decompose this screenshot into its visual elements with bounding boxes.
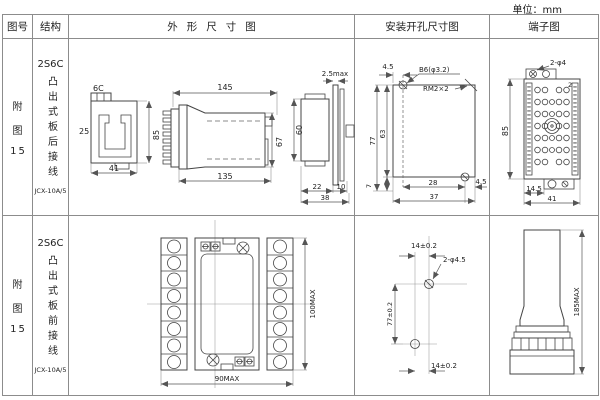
structure-desc: 凸出式板后接线 [46, 76, 56, 181]
rear-profile-drawing: 6C 25 85 41 [79, 83, 161, 181]
header-outline: 外形尺寸图 [69, 15, 355, 39]
dim-label: 90MAX [215, 375, 240, 383]
structure-desc: 凸出式板前接线 [46, 255, 56, 360]
header-mounting: 安装开孔尺寸图 [355, 15, 490, 39]
dim-label: 63 [379, 130, 387, 139]
side-view-drawing: 145 67 135 [153, 81, 283, 191]
dim-label: 10 [337, 183, 346, 191]
type-label: JCX-10A/5 [35, 366, 67, 374]
front-mounting-holes-drawing: 2-φ4.5 14±0.2 77±0.2 14±0.2 [367, 228, 487, 394]
dim-label: 6C [93, 84, 104, 93]
spec-sheet-page: 单位：mm 图号 结构 外形尺寸图 安装开孔尺寸图 端子图 附 图 15 2S6… [0, 0, 600, 400]
terminal-map-drawing: 2-φ4 2 [494, 57, 596, 207]
right-terminal-column [267, 238, 293, 370]
dim-label: 85 [501, 126, 510, 136]
dim-label: 14±0.2 [411, 242, 437, 250]
dim-label: 77 [369, 137, 377, 146]
dim-label: 41 [109, 164, 119, 173]
dim-label: 22 [313, 183, 322, 191]
dim-label: 7 [365, 184, 373, 188]
dim-label: 38 [321, 194, 330, 202]
dim-label: 145 [217, 83, 232, 92]
dim-label: 185MAX [573, 287, 581, 316]
row2-outline-cell: 100MAX 90MAX [69, 216, 355, 395]
row1-terminal-cell: 2-φ4 2 [490, 39, 598, 216]
dim-label: 2.5max [322, 70, 348, 78]
row2-mounting-cell: 2-φ4.5 14±0.2 77±0.2 14±0.2 [355, 216, 490, 395]
dim-label: 41 [548, 195, 557, 203]
pin-comb [163, 109, 179, 167]
terminal-holes [535, 87, 570, 165]
dim-label: 28 [429, 179, 438, 187]
row1-structure: 2S6C 凸出式板后接线 JCX-10A/5 [33, 39, 69, 216]
model-label: 2S6C [37, 59, 63, 70]
row1-mounting-cell: 4.5 B6(φ3.2) RM2×2 77 63 7 [355, 39, 490, 216]
dim-label: 4.5 [475, 178, 486, 186]
row1-fig-no: 附 图 15 [3, 39, 33, 216]
header-structure: 结构 [33, 15, 69, 39]
dim-label: 14±0.2 [431, 362, 457, 370]
header-terminal: 端子图 [490, 15, 598, 39]
dim-label: 135 [217, 172, 232, 181]
dim-label: 60 [295, 125, 304, 135]
front-view-drawing: 100MAX 90MAX [147, 218, 319, 394]
dim-label: 100MAX [309, 289, 317, 318]
dim-label: 37 [430, 193, 439, 201]
row2-structure: 2S6C 凸出式板前接线 JCX-10A/5 [33, 216, 69, 395]
dim-label: 14.5 [526, 185, 542, 193]
left-terminal-column [161, 238, 187, 370]
dim-label: 77±0.2 [386, 302, 394, 326]
dim-label: 4.5 [382, 63, 393, 71]
row2-terminal-cell: 185MAX [490, 216, 598, 395]
drawing-table: 图号 结构 外形尺寸图 安装开孔尺寸图 端子图 附 图 15 2S6C 凸出式板… [2, 14, 599, 396]
dim-label: 25 [79, 127, 89, 136]
dim-label: 67 [275, 137, 284, 147]
row1-outline-cell: 6C 25 85 41 145 [69, 39, 355, 216]
row2-fig-no: 附 图 15 [3, 216, 33, 395]
note-label: 2-φ4 [550, 59, 567, 67]
type-label: JCX-10A/5 [35, 187, 67, 195]
note-label: 2-φ4.5 [443, 256, 466, 264]
model-label: 2S6C [37, 238, 63, 249]
mounting-cutout-drawing: 4.5 B6(φ3.2) RM2×2 77 63 7 [363, 59, 489, 209]
relay-socket-side-drawing: 185MAX [494, 222, 594, 382]
note-label: RM2×2 [423, 85, 449, 93]
note-label: B6(φ3.2) [419, 66, 450, 74]
header-fig-no: 图号 [3, 15, 33, 39]
